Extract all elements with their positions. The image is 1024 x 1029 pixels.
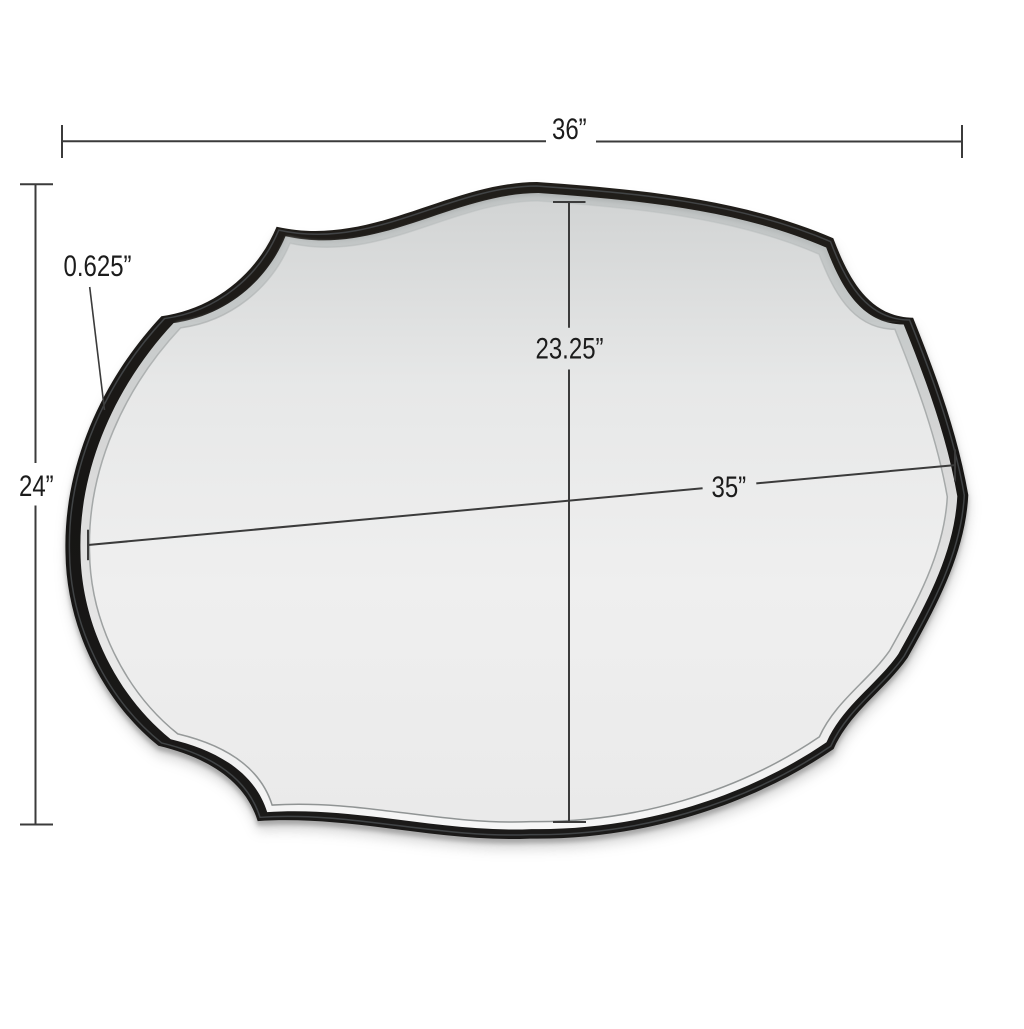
- svg-text:0.625”: 0.625”: [64, 248, 132, 282]
- svg-text:35”: 35”: [712, 469, 747, 503]
- svg-text:23.25”: 23.25”: [536, 331, 604, 365]
- svg-text:36”: 36”: [552, 111, 587, 145]
- svg-text:24”: 24”: [19, 468, 54, 502]
